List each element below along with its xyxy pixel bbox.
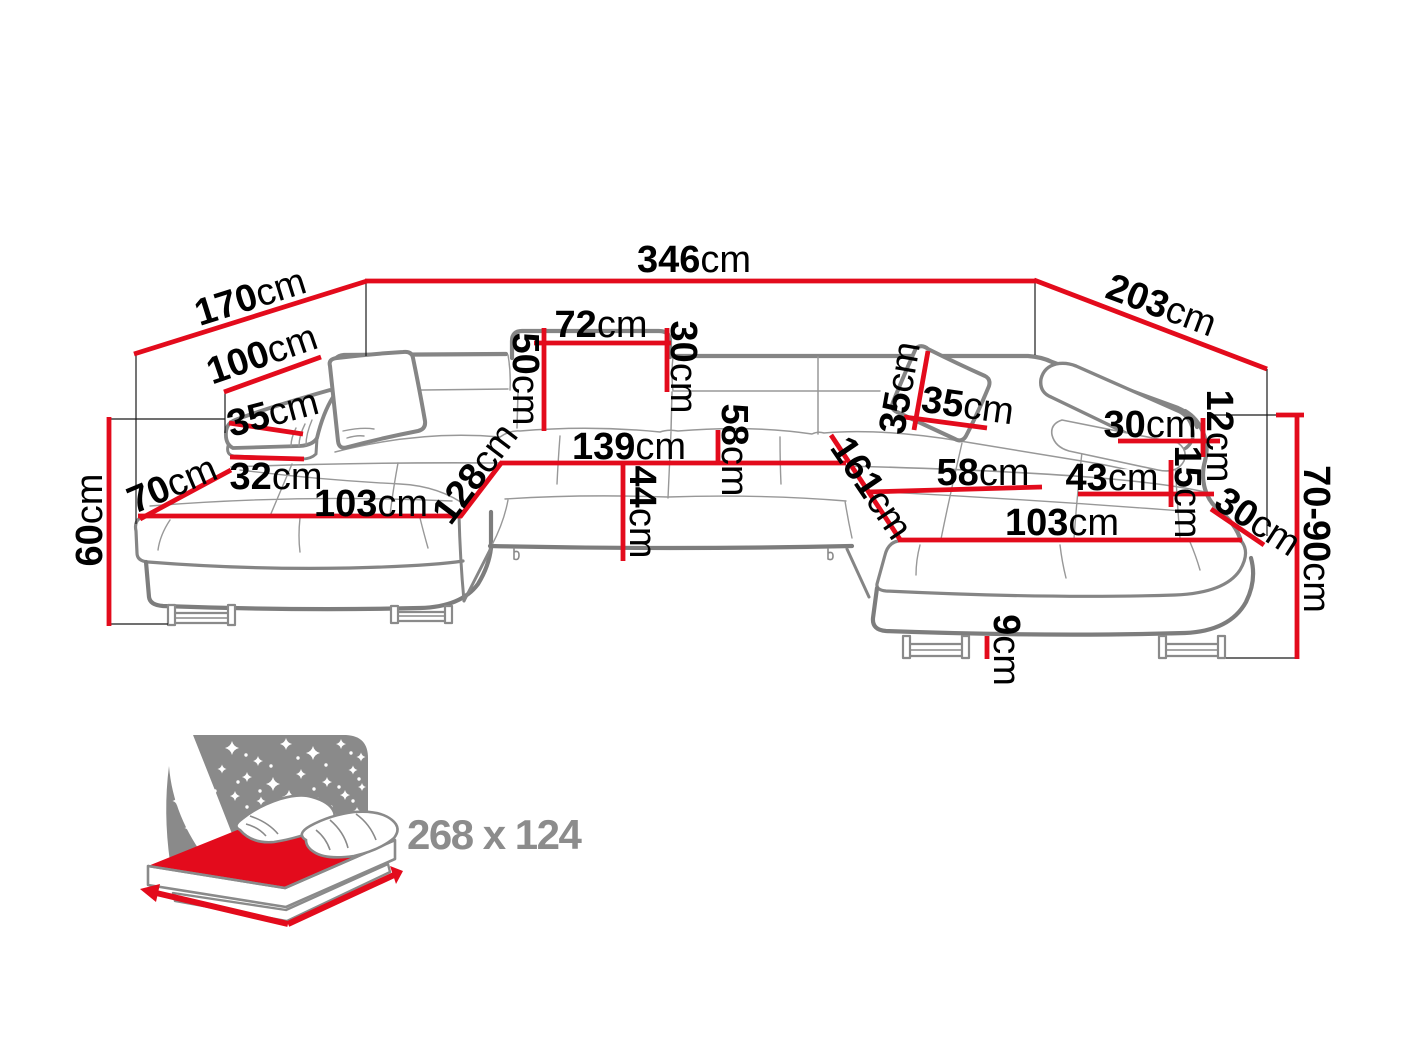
svg-text:346cm: 346cm bbox=[637, 239, 751, 281]
svg-text:60cm: 60cm bbox=[69, 474, 111, 567]
svg-text:139cm: 139cm bbox=[572, 426, 686, 468]
svg-text:72cm: 72cm bbox=[555, 304, 648, 346]
svg-text:103cm: 103cm bbox=[1005, 502, 1119, 544]
svg-text:15cm: 15cm bbox=[1166, 446, 1208, 539]
svg-text:58cm: 58cm bbox=[937, 452, 1030, 494]
svg-text:9cm: 9cm bbox=[985, 614, 1027, 686]
svg-text:103cm: 103cm bbox=[314, 483, 428, 525]
svg-text:30cm: 30cm bbox=[662, 321, 704, 414]
svg-text:70-90cm: 70-90cm bbox=[1295, 465, 1337, 613]
svg-text:44cm: 44cm bbox=[621, 466, 663, 559]
svg-text:268 x 124: 268 x 124 bbox=[407, 811, 582, 858]
svg-text:32cm: 32cm bbox=[230, 456, 323, 498]
svg-text:50cm: 50cm bbox=[504, 333, 546, 426]
svg-text:43cm: 43cm bbox=[1066, 457, 1159, 499]
svg-text:30cm: 30cm bbox=[1104, 404, 1197, 446]
svg-text:58cm: 58cm bbox=[713, 404, 755, 497]
